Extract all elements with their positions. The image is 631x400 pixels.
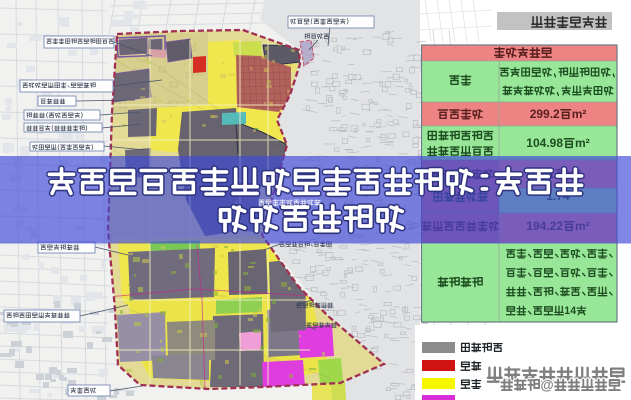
svg-text:14: 14 — [564, 305, 576, 317]
svg-text:@: @ — [541, 378, 554, 393]
svg-text:m²: m² — [575, 136, 590, 150]
svg-text:m²: m² — [572, 107, 587, 121]
svg-text:104.98: 104.98 — [526, 136, 563, 150]
svg-text:299.2: 299.2 — [530, 107, 560, 121]
